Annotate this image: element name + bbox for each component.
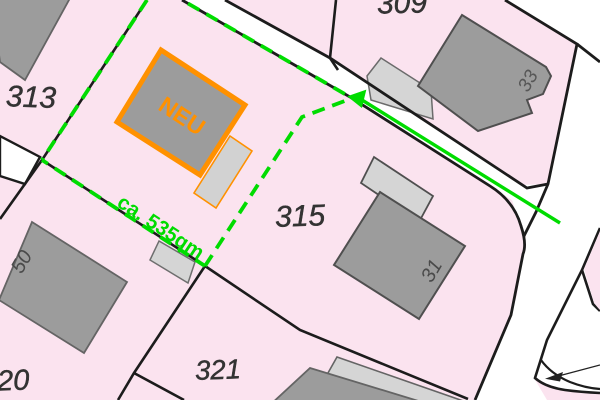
svg-text:309: 309 xyxy=(377,0,428,21)
svg-text:315: 315 xyxy=(274,199,325,234)
svg-text:321: 321 xyxy=(194,353,241,386)
svg-text:313: 313 xyxy=(5,80,56,115)
svg-text:20: 20 xyxy=(0,365,30,398)
